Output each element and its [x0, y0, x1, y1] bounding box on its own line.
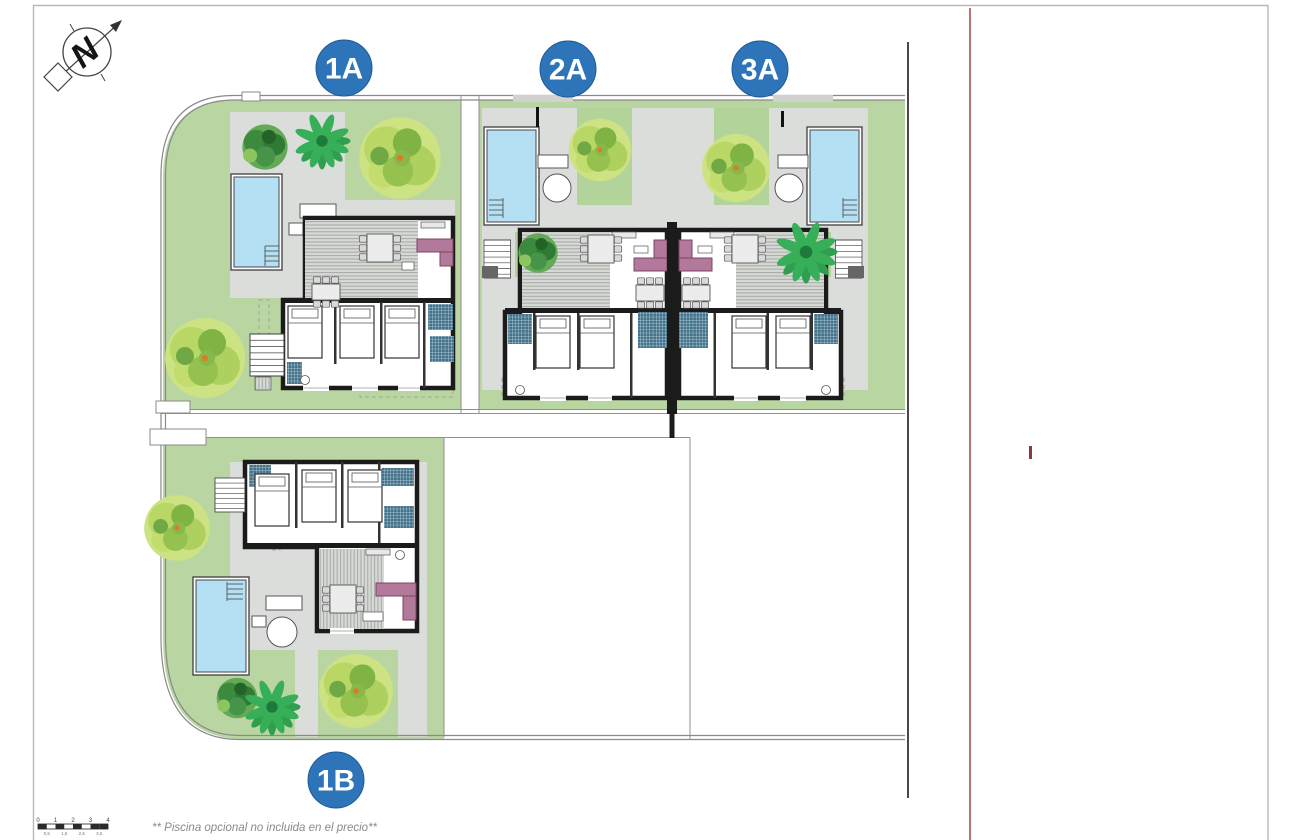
sideboard: [366, 549, 390, 555]
window: [303, 385, 420, 391]
patio-table: [543, 174, 571, 202]
bed: [385, 306, 419, 358]
dining-table: [322, 585, 363, 613]
bathroom: [508, 314, 532, 344]
gate-west-1: [156, 401, 190, 413]
dining-table: [359, 234, 400, 262]
tree-icon: [242, 124, 287, 169]
scale-bar: 0 1 2 3 4 0,5 1,5 2,5 3,5: [36, 818, 110, 836]
sideboard: [421, 222, 445, 228]
stairs: [215, 478, 245, 512]
building-1a: [283, 218, 455, 391]
coffee-table: [363, 612, 383, 621]
fence-post: [536, 107, 539, 127]
tree-icon: [319, 654, 393, 728]
window: [330, 628, 354, 634]
fence-post: [781, 111, 784, 127]
villa-badge-1a[interactable]: 1A: [316, 40, 372, 96]
red-tick-mark: [1029, 446, 1032, 459]
fixture: [396, 551, 405, 560]
gate-north-1a: [242, 92, 260, 101]
bathroom: [287, 362, 302, 384]
scale-sublabel: 0,5: [44, 831, 51, 836]
north-compass-icon: N: [44, 20, 122, 91]
bed: [288, 306, 322, 358]
badge-label: 1B: [317, 765, 355, 798]
side-table: [289, 223, 303, 235]
site-plan-drawing: 1A 2A 3A 1B N 0 1 2 3 4 0,5 1,5 2,5: [0, 0, 1290, 840]
bed: [302, 470, 336, 522]
bathroom: [638, 312, 667, 348]
dining-table: [312, 277, 340, 307]
bathroom: [382, 468, 414, 486]
tree-icon: [359, 117, 441, 199]
bed: [348, 470, 382, 522]
sun-lounger: [266, 596, 302, 610]
fixture: [301, 376, 310, 385]
bathroom: [430, 336, 454, 362]
pool-2a: [484, 127, 539, 225]
badge-label: 2A: [549, 54, 587, 87]
patio-table: [267, 617, 297, 647]
coffee-table: [634, 246, 648, 253]
scale-label: 2: [71, 818, 75, 824]
scale-sublabel: 2,5: [79, 831, 86, 836]
party-wall: [667, 222, 677, 414]
pool-optional-note: ** Piscina opcional no incluida en el pr…: [152, 822, 378, 834]
stairs-lower: [255, 377, 271, 390]
scale-label: 0: [36, 818, 40, 824]
fixture: [516, 386, 525, 395]
site-plan-page: 1A 2A 3A 1B N 0 1 2 3 4 0,5 1,5 2,5: [0, 0, 1290, 840]
villa-badge-1b[interactable]: 1B: [308, 752, 364, 808]
side-table: [252, 616, 266, 627]
stairs: [250, 334, 284, 376]
badge-label: 1A: [325, 53, 363, 86]
dining-table: [636, 278, 664, 308]
sun-lounger: [538, 155, 568, 168]
bed: [536, 316, 570, 368]
stairs-landing: [482, 266, 498, 278]
scale-sublabel: 3,5: [96, 831, 103, 836]
dining-table: [580, 235, 621, 263]
villa-badge-3a[interactable]: 3A: [732, 41, 788, 97]
villa-badge-2a[interactable]: 2A: [540, 41, 596, 97]
badge-label: 3A: [741, 54, 779, 87]
tree-icon: [569, 119, 631, 181]
scale-sublabel: 1,5: [61, 831, 68, 836]
scale-label: 3: [89, 818, 93, 824]
scale-label: 1: [54, 818, 58, 824]
pool-1b: [193, 577, 249, 675]
tree-icon: [144, 495, 210, 561]
bathroom: [428, 304, 453, 330]
tree-icon: [702, 134, 770, 202]
gate-west-2: [150, 429, 206, 445]
bed: [340, 306, 374, 358]
bed: [580, 316, 614, 368]
tree-icon: [165, 318, 245, 398]
tree-icon: [518, 233, 557, 272]
bathroom: [384, 506, 414, 528]
pool-1a: [231, 174, 282, 270]
party-wall: [670, 414, 675, 438]
scale-label: 4: [106, 818, 110, 824]
coffee-table: [402, 262, 414, 270]
bed: [255, 474, 289, 526]
